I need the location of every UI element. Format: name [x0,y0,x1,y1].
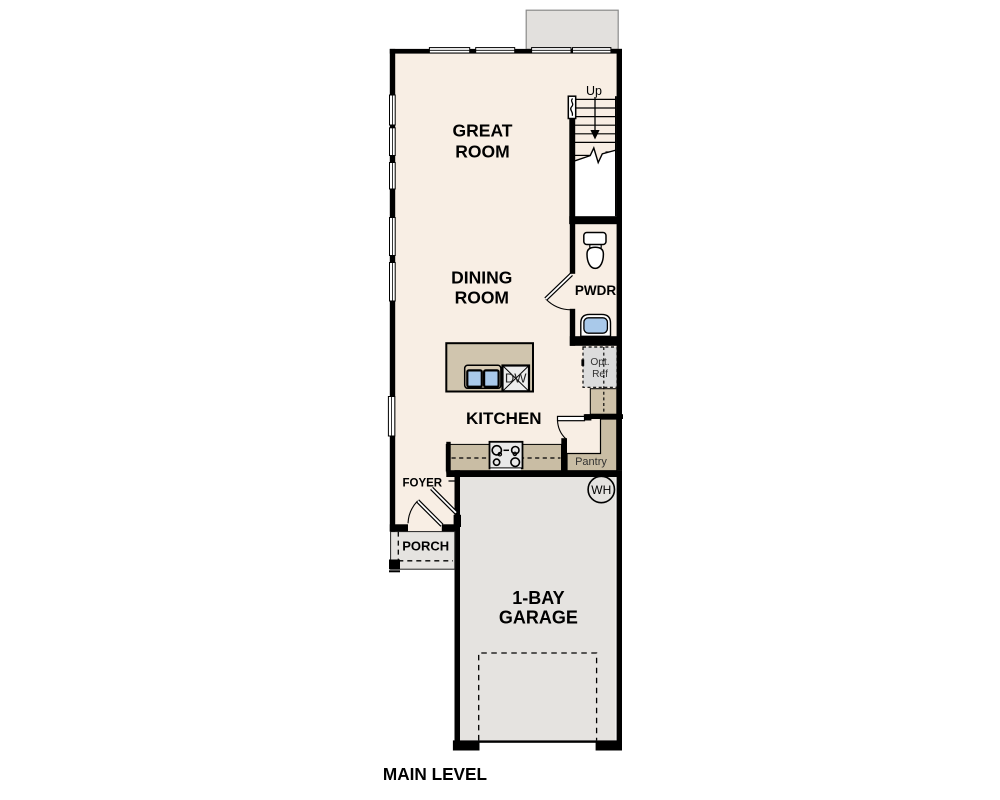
svg-text:WH: WH [591,483,611,497]
svg-text:ROOM: ROOM [455,141,509,161]
svg-text:GARAGE: GARAGE [499,608,578,628]
svg-text:DW: DW [505,371,527,386]
svg-text:KITCHEN: KITCHEN [466,409,542,428]
svg-text:Ref: Ref [592,369,608,380]
svg-text:1-BAY: 1-BAY [512,588,564,608]
svg-text:Up: Up [586,84,602,98]
svg-text:DINING: DINING [451,268,512,288]
svg-text:MAIN LEVEL: MAIN LEVEL [383,764,487,784]
svg-text:Opt.: Opt. [590,357,609,368]
svg-text:ROOM: ROOM [455,288,509,308]
svg-text:GREAT: GREAT [453,120,513,140]
svg-text:FOYER: FOYER [403,478,443,490]
svg-text:Pantry: Pantry [575,456,607,468]
svg-text:PWDR: PWDR [575,283,616,298]
svg-text:PORCH: PORCH [402,539,449,554]
